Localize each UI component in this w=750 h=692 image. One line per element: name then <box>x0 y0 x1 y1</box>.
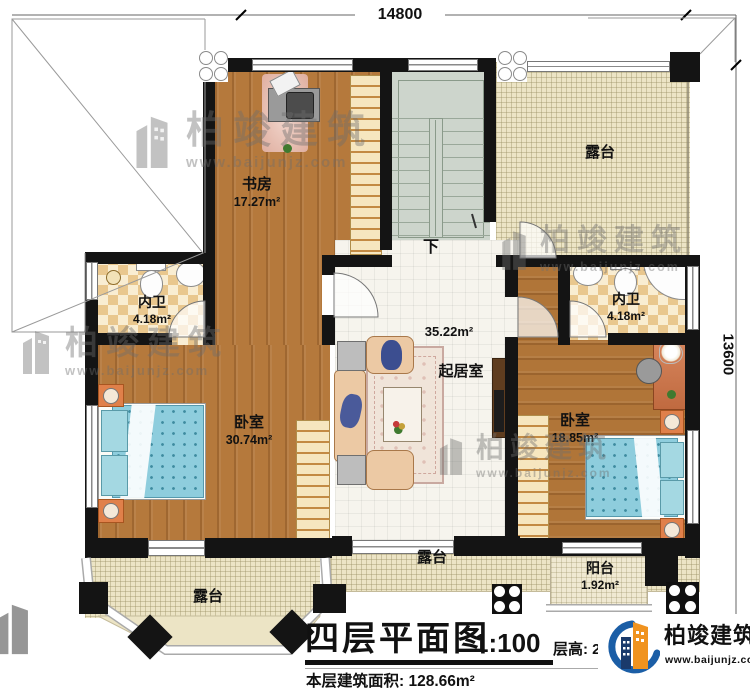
floor-height-line: 层高: 2 <box>553 641 601 660</box>
company-logo: 柏竣建筑 www.baijunjz.com <box>598 614 750 686</box>
room-label-bath-left: 内卫 4.18m² <box>114 294 190 327</box>
dimension-width: 14800 <box>355 5 445 25</box>
stairs-down-label: 下 <box>418 238 444 258</box>
column-capital <box>198 50 228 82</box>
room-name: 卧室 <box>208 414 290 433</box>
room-name: 卧室 <box>538 412 612 431</box>
plan-linework <box>0 0 750 692</box>
room-label-bedroom-right: 卧室 18.85m² <box>538 412 612 446</box>
room-label-bedroom-left: 卧室 30.74m² <box>208 414 290 448</box>
room-area: 30.74m² <box>208 433 290 449</box>
watermark-building-icon <box>0 600 36 660</box>
floor-plan-canvas: 14800 13600 书房 17.27m² 露台 内卫 4.18m² 内卫 4… <box>0 0 750 692</box>
plan-scale: 1:100 <box>474 627 541 660</box>
room-label-study: 书房 17.27m² <box>213 176 301 210</box>
column-ornate <box>492 584 522 614</box>
room-name: 阳台 <box>564 560 636 578</box>
room-label-living: 起居室 <box>428 363 494 382</box>
title-underline-thin <box>305 668 617 669</box>
room-label-bath-right: 内卫 4.18m² <box>593 291 659 324</box>
room-area: 4.18m² <box>114 312 190 327</box>
room-area: 1.92m² <box>564 578 636 593</box>
room-name: 内卫 <box>593 291 659 309</box>
room-area: 17.27m² <box>213 195 301 211</box>
dimension-height: 13600 <box>718 322 737 386</box>
column <box>79 582 108 614</box>
column-ornate <box>666 582 699 615</box>
column <box>670 52 700 82</box>
room-label-terrace-top: 露台 <box>570 144 630 163</box>
room-name: 书房 <box>213 176 301 195</box>
plan-title: 四层平面图 <box>305 618 490 661</box>
watermark-fragment <box>0 600 36 665</box>
room-label-terrace-mid: 露台 <box>404 549 460 568</box>
title-underline-thick <box>305 660 553 665</box>
room-label-balcony: 阳台 1.92m² <box>564 560 636 593</box>
room-name: 内卫 <box>114 294 190 312</box>
room-area: 4.18m² <box>593 309 659 324</box>
company-name: 柏竣建筑 <box>664 622 750 650</box>
company-url: www.baijunjz.com <box>665 654 750 667</box>
floor-area-line: 本层建筑面积: 128.66m² <box>306 672 475 691</box>
company-logo-icon <box>604 617 660 679</box>
room-label-terrace-bottom-left: 露台 <box>180 588 236 607</box>
column <box>313 584 346 613</box>
room-area: 18.85m² <box>538 431 612 447</box>
room-area-living: 35.22m² <box>413 324 485 340</box>
column-capital <box>497 50 527 82</box>
